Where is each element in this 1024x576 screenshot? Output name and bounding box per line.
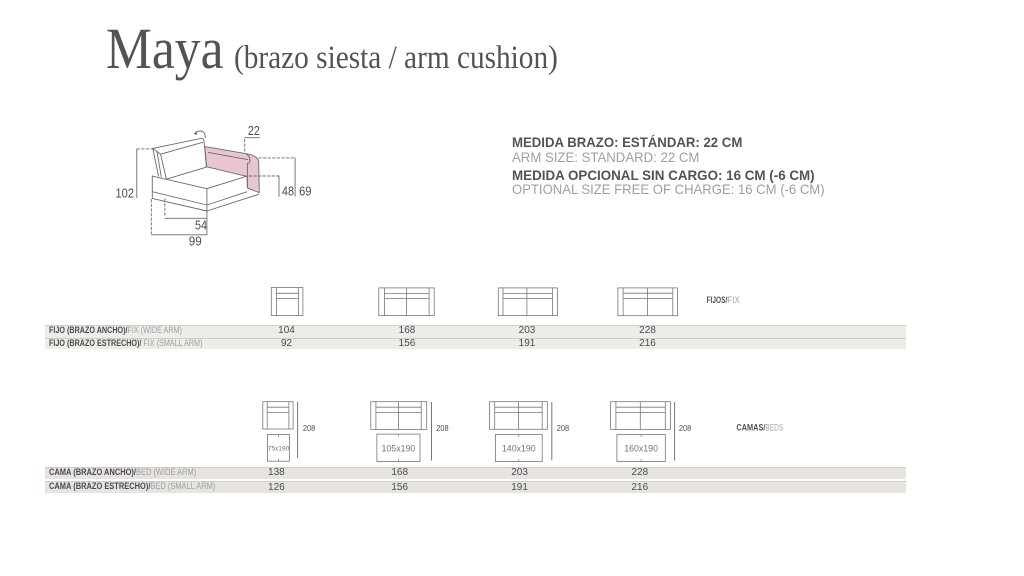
svg-text:208: 208 (557, 423, 570, 433)
svg-text:BEDS: BEDS (765, 423, 783, 433)
svg-text:208: 208 (679, 423, 692, 433)
svg-text:75x190: 75x190 (268, 446, 290, 453)
svg-text:FIX: FIX (727, 295, 740, 305)
svg-text:160x190: 160x190 (624, 444, 658, 454)
svg-text:CAMAS/: CAMAS/ (736, 423, 765, 433)
svg-text:54: 54 (195, 219, 207, 233)
svg-text:FIJOS/: FIJOS/ (707, 295, 728, 305)
svg-text:140x190: 140x190 (502, 444, 536, 454)
svg-text:105x190: 105x190 (382, 444, 416, 454)
svg-text:102: 102 (116, 187, 135, 201)
svg-text:208: 208 (436, 423, 449, 433)
svg-text:69: 69 (299, 185, 312, 199)
svg-text:208: 208 (303, 423, 316, 433)
svg-text:22: 22 (248, 124, 260, 138)
svg-text:99: 99 (189, 235, 202, 249)
svg-text:48: 48 (282, 185, 294, 199)
